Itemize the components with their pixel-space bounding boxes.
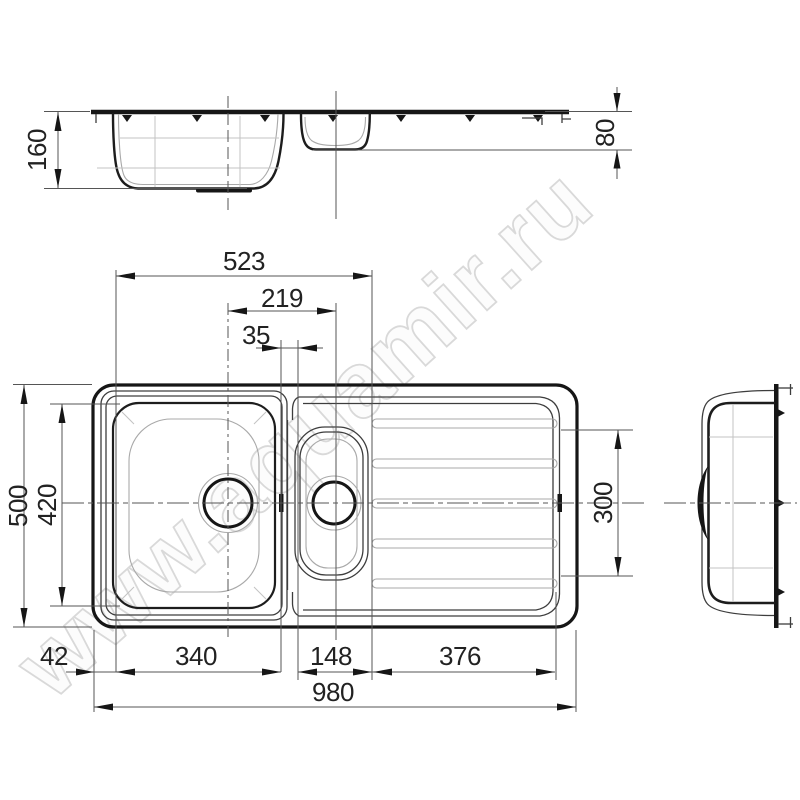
dim-drain-spacing: 219 xyxy=(228,283,336,315)
dim-label-small-bowl-depth: 80 xyxy=(590,119,620,147)
dim-label-main-bowl-width: 340 xyxy=(175,641,217,671)
technical-drawing-canvas: www.aquamir.ru xyxy=(0,0,800,800)
dim-label-bowl-gap: 35 xyxy=(242,320,270,350)
dim-small-bowl-depth: 80 xyxy=(313,87,632,179)
drainer-rib xyxy=(372,579,557,588)
drainer-rib xyxy=(372,539,557,548)
dim-label-overall-length: 980 xyxy=(312,677,354,707)
dim-label-bowl-length: 420 xyxy=(32,484,62,526)
drainer-rib xyxy=(372,459,557,468)
dim-bowls-span: 523 xyxy=(116,246,372,280)
dim-label-drain-spacing: 219 xyxy=(261,283,303,313)
dim-bowl-gap: 35 xyxy=(242,320,323,352)
dim-label-small-bowl-width: 148 xyxy=(310,641,352,671)
dim-label-main-bowl-depth: 160 xyxy=(22,129,52,171)
sink-drawing-svg: www.aquamir.ru xyxy=(0,0,800,800)
dim-label-drainer-width: 376 xyxy=(439,641,481,671)
mounting-clip-icons xyxy=(122,115,543,122)
dim-label-bowls-span: 523 xyxy=(223,246,265,276)
side-rim xyxy=(774,384,779,628)
dim-label-left-margin: 42 xyxy=(40,641,68,671)
dim-label-drainer-length: 300 xyxy=(588,482,618,524)
drainer-rib xyxy=(372,419,557,428)
dim-main-bowl-depth: 160 xyxy=(22,112,247,189)
side-view xyxy=(664,384,797,628)
dim-overall-length: 980 xyxy=(94,677,576,711)
dim-label-overall-width: 500 xyxy=(3,485,33,527)
